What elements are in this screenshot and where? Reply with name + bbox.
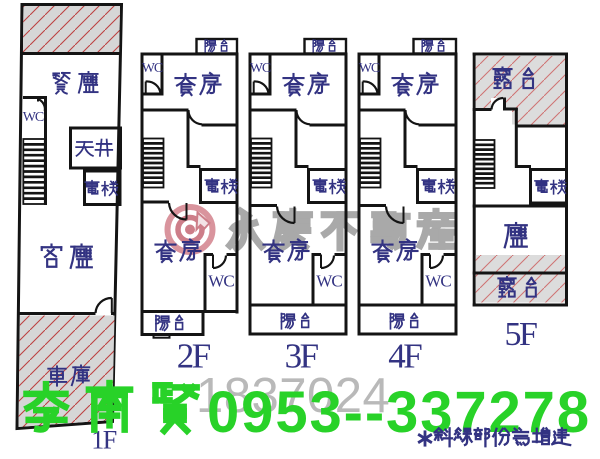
svg-text:5F: 5F bbox=[505, 316, 538, 353]
svg-text:WC: WC bbox=[316, 272, 342, 291]
svg-text:WC: WC bbox=[208, 272, 234, 291]
svg-text:WC: WC bbox=[23, 110, 44, 125]
svg-text:WC: WC bbox=[250, 61, 271, 76]
svg-text:WC: WC bbox=[142, 61, 163, 76]
svg-text:WC: WC bbox=[425, 272, 451, 291]
svg-text:WC: WC bbox=[359, 61, 380, 76]
svg-text:0953--337278: 0953--337278 bbox=[207, 380, 591, 445]
svg-text:4F: 4F bbox=[388, 337, 422, 376]
